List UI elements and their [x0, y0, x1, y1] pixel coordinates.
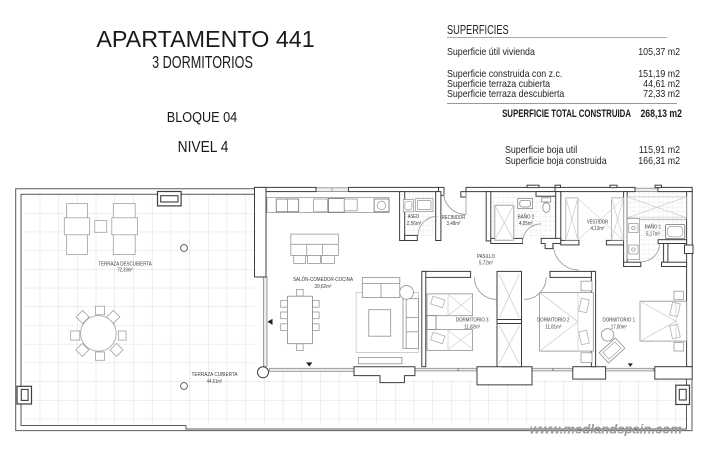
svg-text:DORMITORIO 1: DORMITORIO 1 — [603, 317, 636, 323]
svg-text:TERRAZA CUBIERTA: TERRAZA CUBIERTA — [192, 372, 238, 378]
svg-text:SALÓN-COMEDOR-COCINA: SALÓN-COMEDOR-COCINA — [293, 276, 353, 283]
svg-text:BAÑO 1: BAÑO 1 — [645, 224, 661, 231]
svg-text:11,81m²: 11,81m² — [545, 324, 561, 330]
svg-text:5,17m²: 5,17m² — [646, 231, 660, 237]
svg-text:44,61m²: 44,61m² — [207, 379, 223, 385]
svg-text:11,82m²: 11,82m² — [464, 324, 480, 330]
svg-text:DORMITORIO 3: DORMITORIO 3 — [456, 317, 489, 323]
svg-text:RECIBIDOR: RECIBIDOR — [442, 215, 466, 221]
svg-text:72,33m²: 72,33m² — [117, 268, 132, 274]
svg-text:TERRAZA DESCUBIERTA: TERRAZA DESCUBIERTA — [98, 262, 152, 268]
svg-text:5,72m²: 5,72m² — [479, 261, 493, 267]
svg-text:PASILLO: PASILLO — [477, 254, 495, 260]
svg-text:17,00m²: 17,00m² — [611, 324, 627, 330]
svg-text:4,12m²: 4,12m² — [591, 226, 605, 232]
svg-text:ASEO: ASEO — [408, 214, 420, 220]
svg-text:BAÑO 2: BAÑO 2 — [518, 214, 534, 221]
svg-text:DORMITORIO 2: DORMITORIO 2 — [537, 317, 569, 323]
svg-text:www.medlandspain.com: www.medlandspain.com — [530, 422, 683, 437]
svg-text:2,56m²: 2,56m² — [407, 221, 422, 227]
svg-text:39,62m²: 39,62m² — [315, 284, 332, 290]
svg-text:4,05m²: 4,05m² — [519, 221, 533, 227]
svg-text:3,48m²: 3,48m² — [447, 221, 461, 227]
svg-text:VESTIDOR: VESTIDOR — [587, 219, 608, 225]
